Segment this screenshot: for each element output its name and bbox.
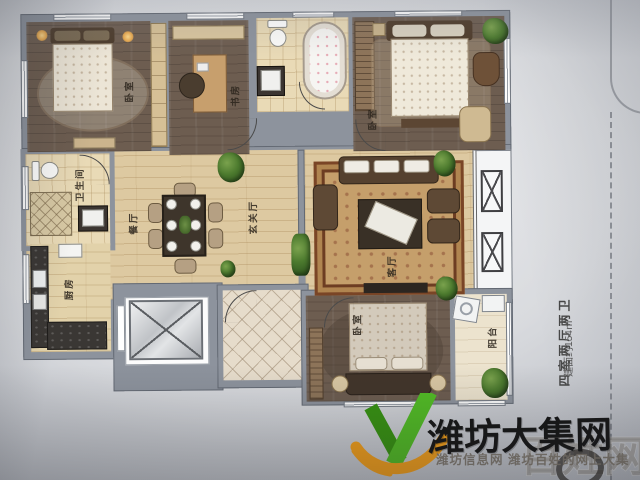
elevator-door xyxy=(117,305,125,351)
plate xyxy=(166,220,177,231)
floorplan: 卧室 书房 卧室 卫生间 餐厅 玄关厅 厨房 客厅 卧室 阳台 xyxy=(20,10,513,416)
sofa-cushion xyxy=(404,160,430,173)
plate xyxy=(190,241,201,252)
stove xyxy=(33,294,47,310)
pillow xyxy=(392,25,426,37)
chaise xyxy=(313,184,338,230)
kitchen-counter-bottom xyxy=(47,321,107,350)
armchair xyxy=(427,188,460,213)
pillow xyxy=(83,30,109,40)
window-left-2 xyxy=(22,166,29,210)
label-master-bedroom: 卧室 xyxy=(365,108,379,131)
utility-sink xyxy=(482,295,505,312)
desk-papers xyxy=(197,63,209,72)
plant-icon xyxy=(217,152,244,182)
plate xyxy=(190,199,201,210)
bed-headboard xyxy=(345,373,431,396)
toilet-icon xyxy=(266,20,288,50)
desk-chair xyxy=(179,73,205,99)
closet-strip xyxy=(150,23,167,147)
label-entry-hall: 玄关厅 xyxy=(245,200,259,235)
window-master-right xyxy=(503,38,511,104)
sofa-cushion xyxy=(374,160,400,173)
pillow xyxy=(54,31,80,41)
shelf xyxy=(172,25,244,40)
window-top-2 xyxy=(186,12,244,20)
vanity-sink xyxy=(82,209,104,226)
wardrobe xyxy=(309,328,324,400)
dining-chair xyxy=(208,228,223,248)
plant-icon xyxy=(436,276,458,300)
bathtub xyxy=(302,21,347,99)
dresser xyxy=(73,137,115,148)
nightstand xyxy=(372,23,385,36)
nightstand xyxy=(429,374,446,391)
plant-icon xyxy=(433,150,455,176)
vanity-sink xyxy=(261,70,281,91)
label-bedroom-bottom: 卧室 xyxy=(349,313,363,336)
window-left-3 xyxy=(22,254,29,304)
bed-bench xyxy=(401,118,459,128)
plant-icon xyxy=(482,18,508,44)
bed xyxy=(390,38,469,117)
label-bathroom: 卫生间 xyxy=(72,167,86,202)
bed xyxy=(53,43,114,112)
label-bedroom-topleft: 卧室 xyxy=(121,80,135,103)
window-balcony-bottom xyxy=(458,400,506,406)
armchair xyxy=(473,52,500,86)
armchair xyxy=(427,218,460,243)
watermark-tagline: 潍坊信息网 潍坊百姓的网上大集 xyxy=(436,449,629,468)
label-study: 书房 xyxy=(227,84,241,107)
elevator-car xyxy=(129,300,204,361)
window-top-3 xyxy=(292,11,334,17)
dining-chair xyxy=(148,203,163,223)
sofa-cushion xyxy=(344,160,370,173)
pillow xyxy=(391,357,423,370)
shower xyxy=(30,192,72,236)
dining-chair xyxy=(208,202,223,222)
label-balcony: 阳台 xyxy=(484,325,498,348)
pillow xyxy=(355,357,387,370)
window-left-1 xyxy=(21,60,29,118)
plate xyxy=(166,199,177,210)
plant-icon xyxy=(291,234,310,276)
dining-chair xyxy=(148,229,163,249)
dining-chair xyxy=(174,259,196,274)
window-top-4 xyxy=(394,10,462,17)
wall-hall-living-divider xyxy=(297,150,305,246)
plate xyxy=(190,220,201,231)
floorplan-photo: 卧室 书房 卧室 卫生间 餐厅 玄关厅 厨房 客厅 卧室 阳台 四室两厅两卫 建… xyxy=(0,0,640,480)
label-kitchen: 厨房 xyxy=(61,277,75,300)
sink xyxy=(32,270,46,288)
fridge xyxy=(58,244,82,258)
pillow xyxy=(430,24,464,36)
plant-icon xyxy=(481,368,508,398)
window-top-1 xyxy=(53,13,111,21)
label-dining: 餐厅 xyxy=(125,212,139,235)
centerpiece xyxy=(179,216,191,234)
window-x-box-1 xyxy=(481,170,503,212)
tv-console xyxy=(364,283,428,294)
plant-icon xyxy=(220,260,235,277)
lamp-icon xyxy=(122,31,133,42)
page-corner-line xyxy=(610,0,640,114)
area-annotation: 建面约154㎡ xyxy=(560,320,575,377)
label-living: 客厅 xyxy=(384,254,398,277)
nightstand xyxy=(331,375,348,392)
lamp-icon xyxy=(36,30,47,41)
toilet-icon xyxy=(32,160,62,182)
plate xyxy=(166,241,177,252)
side-table xyxy=(459,106,491,142)
window-x-box-2 xyxy=(481,232,503,272)
